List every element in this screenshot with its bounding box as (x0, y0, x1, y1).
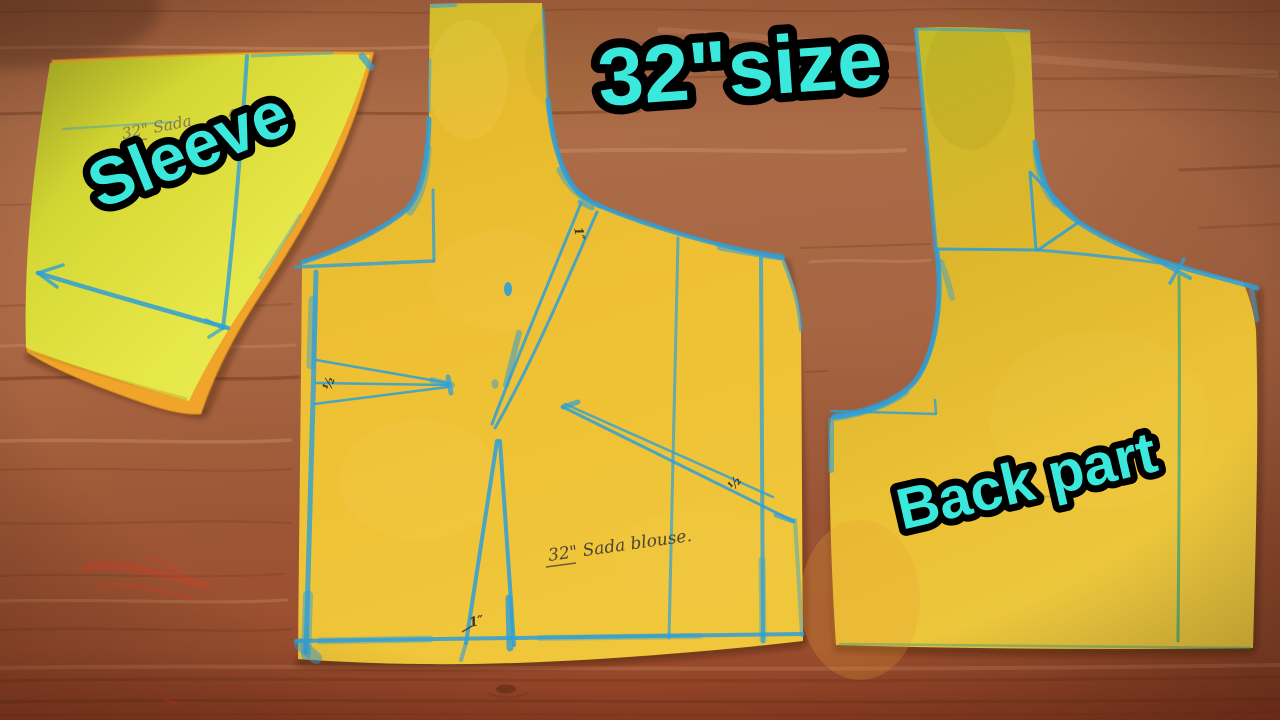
video-frame: 32" Sada (0, 0, 1280, 720)
pattern-photo: 32" Sada (0, 0, 1280, 720)
